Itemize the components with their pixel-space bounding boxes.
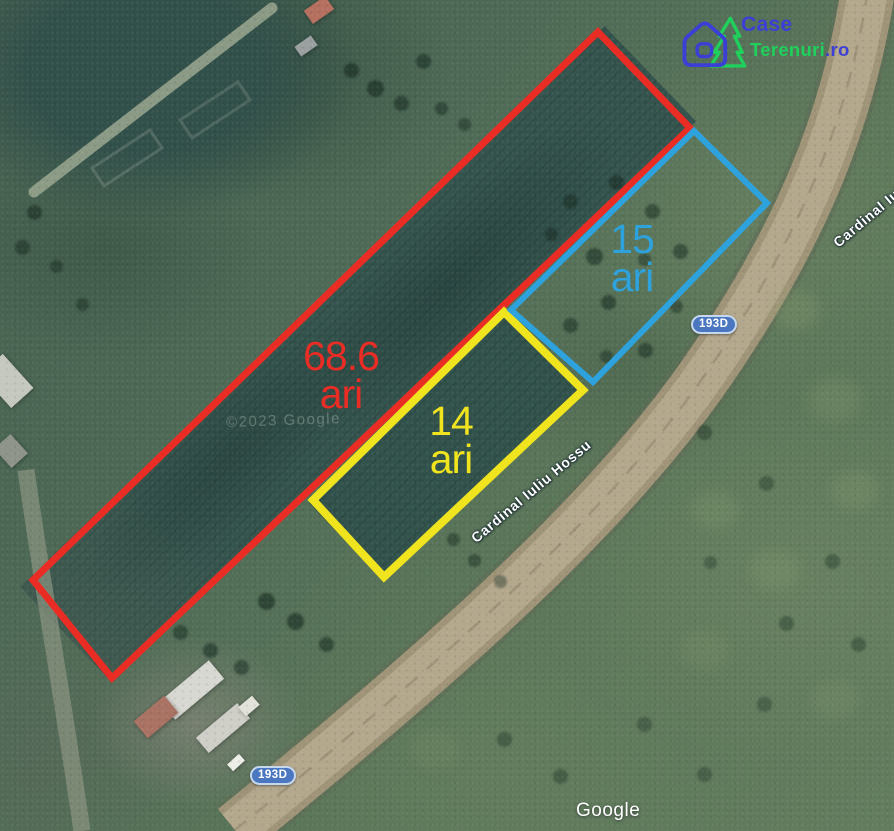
road-name-label-clipped: Cardinal Iuliu Hossu	[830, 141, 894, 251]
area-value: 15	[610, 216, 654, 262]
logo-house-tree-icon	[681, 14, 749, 72]
route-badge-193d: 193D	[691, 315, 737, 334]
logo-word-ro: .ro	[825, 39, 850, 60]
house-window-icon	[697, 44, 711, 57]
parcel-area-label-blue: 15 ari	[610, 220, 654, 296]
dirt-track-bottomleft	[26, 470, 82, 831]
tree-icon	[711, 18, 745, 66]
logo-word-case: Case	[741, 13, 850, 37]
satellite-map[interactable]: 68.6 ari 14 ari 15 ari Cardinal Iuliu Ho…	[0, 0, 894, 831]
caseterenuri-logo: Case Terenuri.ro	[681, 10, 850, 72]
logo-wordmark: Case Terenuri.ro	[741, 10, 850, 72]
building	[0, 434, 28, 468]
area-unit: ari	[611, 254, 654, 300]
dark-field-topleft	[0, 0, 360, 220]
building	[0, 354, 34, 408]
google-attribution: Google	[576, 800, 640, 822]
logo-word-terenuri: Terenuri	[750, 39, 825, 60]
farmyard-area	[90, 635, 305, 810]
house-icon	[684, 23, 725, 65]
